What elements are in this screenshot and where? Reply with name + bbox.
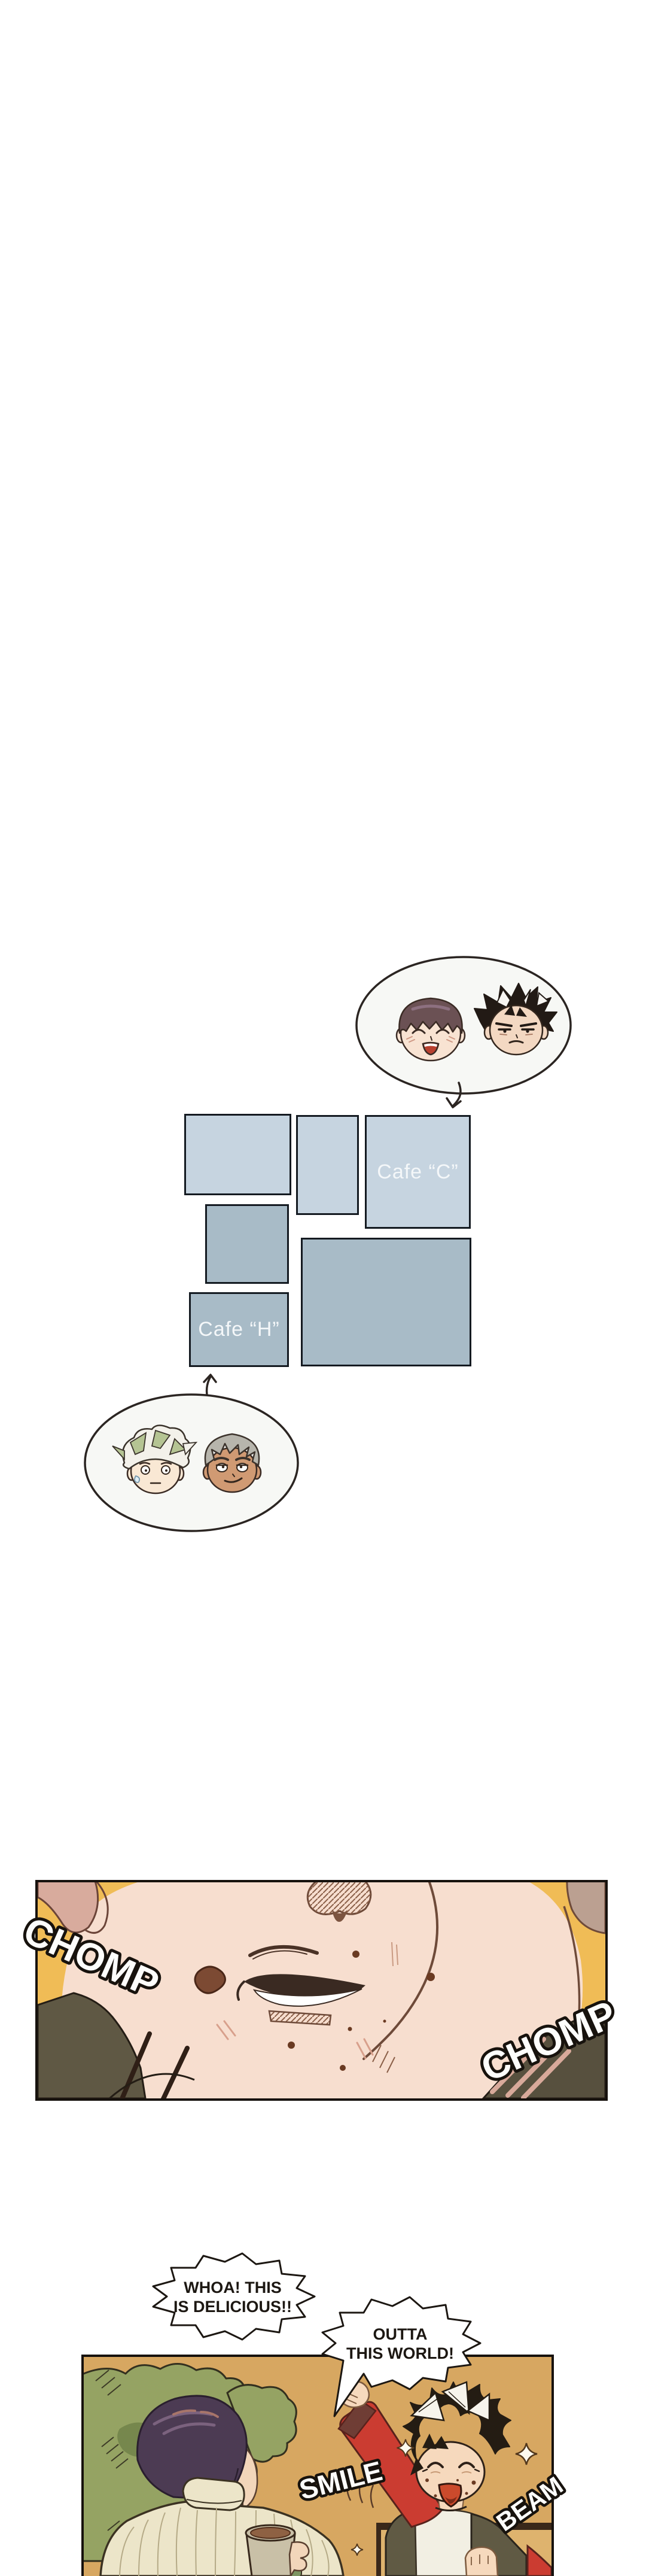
webtoon-page: Cafe “C” Cafe “H” [0, 0, 646, 2576]
sfx-chomp-left: CHOMP [0, 1910, 193, 2006]
map-block-cafe-c: Cafe “C” [365, 1115, 471, 1229]
speech-bubble-outta: OUTTA THIS WORLD! [301, 2289, 499, 2418]
sfx-chomp-right: CHOMP [447, 1994, 646, 2090]
speech-outta-line1: OUTTA [373, 2325, 428, 2343]
cafe-c-label: Cafe “C” [377, 1161, 458, 1184]
sfx-smile-text: SMILE [296, 2455, 385, 2505]
sfx-smile: SMILE [257, 2442, 425, 2520]
speech-outta-line2: THIS WORLD! [346, 2344, 454, 2362]
speech-whoa-line2: IS DELICIOUS!! [173, 2298, 292, 2316]
map-block-2 [296, 1115, 359, 1215]
sfx-chomp-left-text: CHOMP [17, 1909, 165, 2006]
speech-bubble-whoa: WHOA! THIS IS DELICIOUS!! [140, 2243, 325, 2350]
cafe-h-label: Cafe “H” [198, 1318, 279, 1341]
speech-bubble-top [344, 947, 589, 1121]
map-block-1 [184, 1114, 291, 1195]
map-block-3 [205, 1204, 289, 1284]
map-block-4 [301, 1238, 471, 1366]
speech-bubble-bottom-outline [85, 1395, 298, 1531]
sfx-chomp-right-text: CHOMP [475, 1992, 623, 2090]
sfx-beam-text: BEAM [491, 2471, 568, 2536]
speech-whoa-line1: WHOA! THIS [184, 2279, 281, 2296]
character-face-gray-hair [203, 1434, 261, 1492]
speech-bubble-bottom [75, 1387, 314, 1541]
map-block-cafe-h: Cafe “H” [189, 1292, 289, 1367]
sfx-beam: BEAM [452, 2465, 607, 2542]
